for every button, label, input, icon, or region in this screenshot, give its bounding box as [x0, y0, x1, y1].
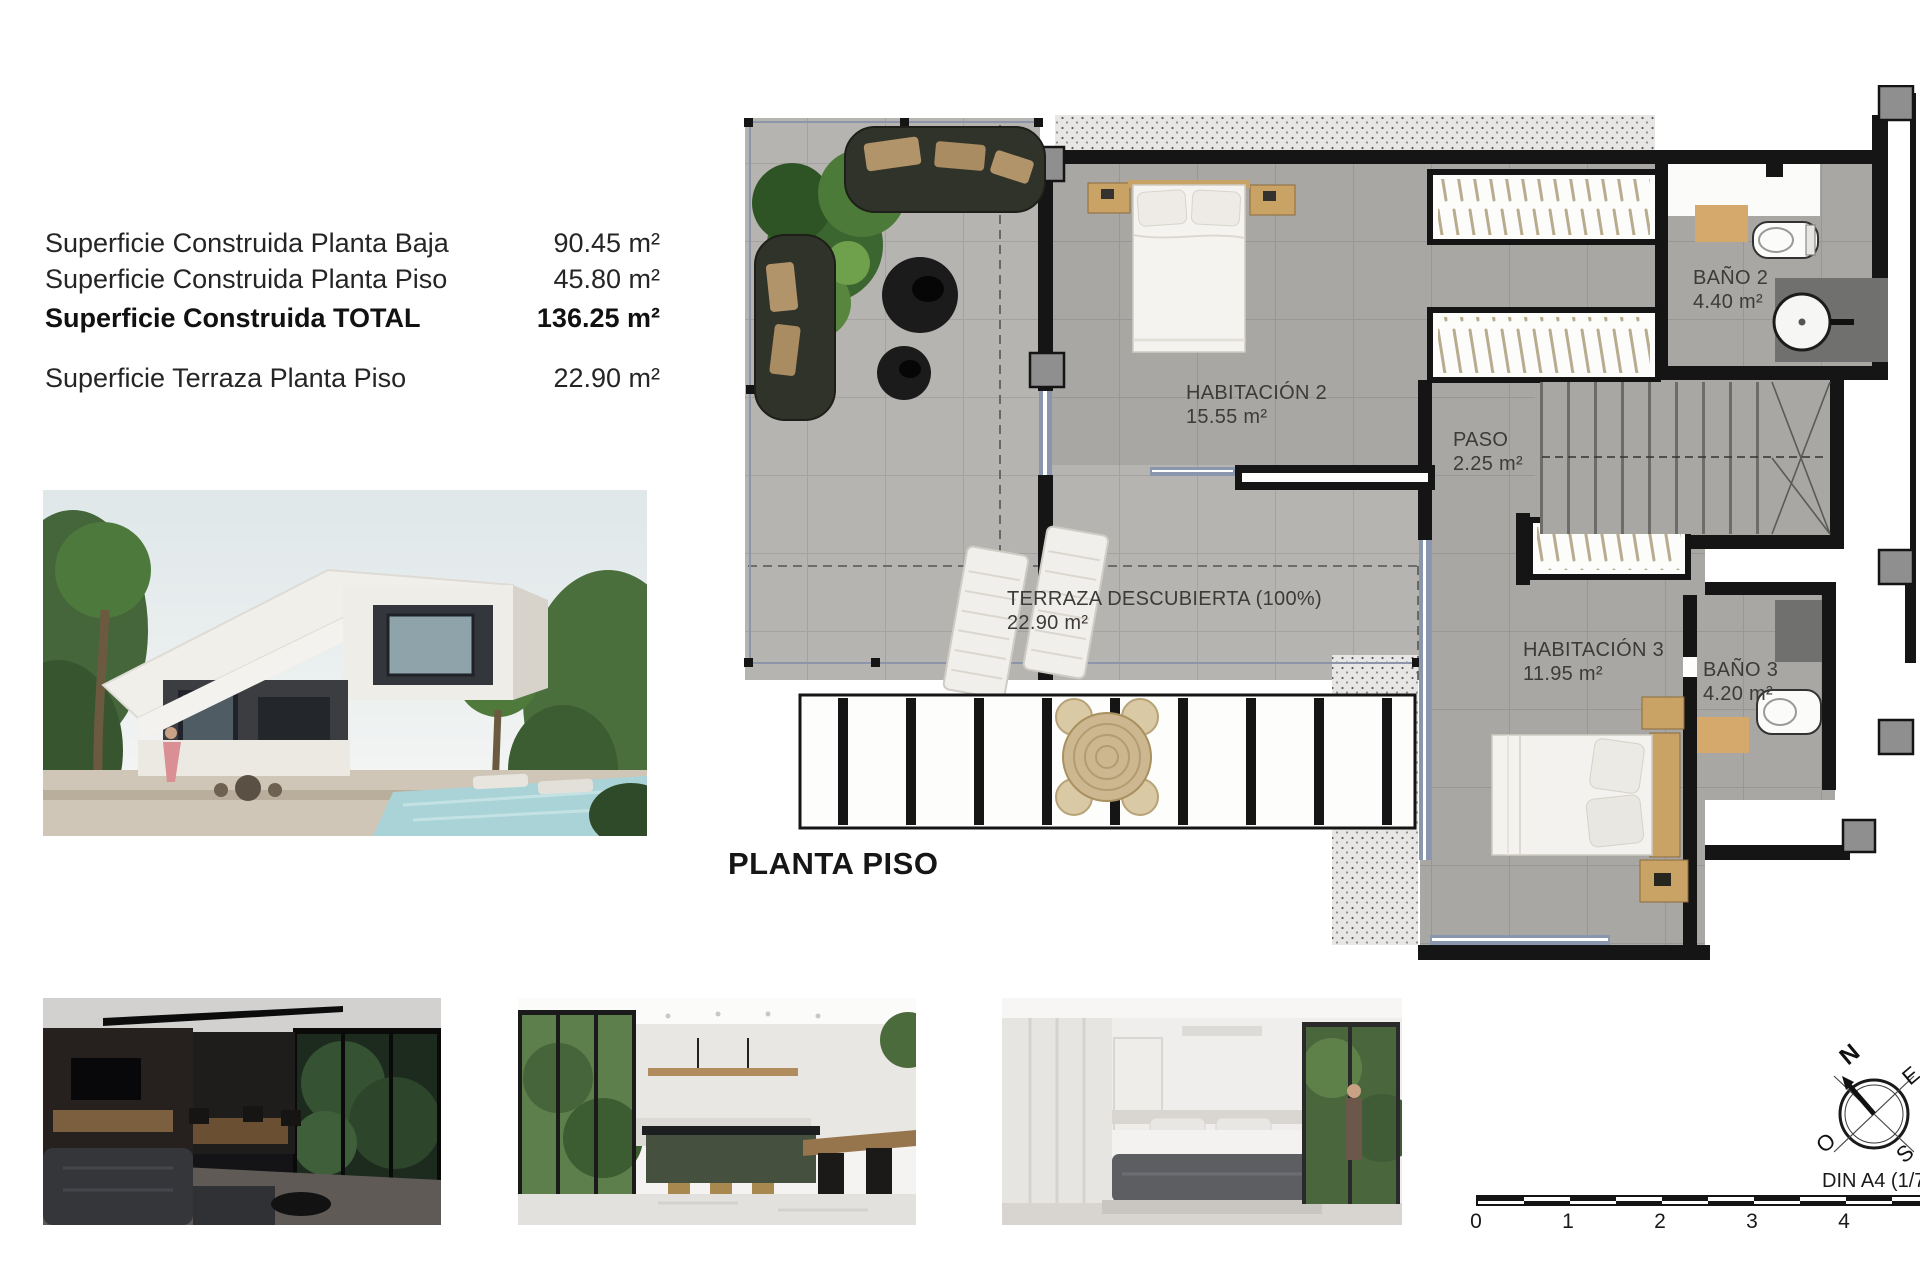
- compass-east-label: E: [1897, 1061, 1920, 1090]
- surface-value: 90.45 m²: [430, 228, 660, 259]
- gravel-strip-top: [1055, 115, 1655, 150]
- room-label-habitacion3: HABITACIÓN 3 11.95 m²: [1523, 638, 1664, 686]
- room-name: BAÑO 2: [1693, 266, 1768, 290]
- room-label-bano2: BAÑO 2 4.40 m²: [1693, 266, 1768, 314]
- scale-tick: 1: [1556, 1210, 1580, 1234]
- room-name: PASO: [1453, 428, 1523, 452]
- room-name: BAÑO 3: [1703, 658, 1778, 682]
- interior-photo-kitchen: [518, 998, 916, 1225]
- room-label-bano3: BAÑO 3 4.20 m²: [1703, 658, 1778, 706]
- pergola: [800, 695, 1415, 828]
- room-area: 4.20 m²: [1703, 682, 1778, 706]
- room-name: HABITACIÓN 2: [1186, 381, 1327, 405]
- room-area: 15.55 m²: [1186, 405, 1327, 429]
- room-label-paso: PASO 2.25 m²: [1453, 428, 1523, 476]
- surface-label: Superficie Construida Planta Piso: [45, 264, 447, 295]
- table-row: Superficie Terraza Planta Piso 22.90 m²: [45, 363, 660, 397]
- scale-tick: 0: [1464, 1210, 1488, 1234]
- table-row: Superficie Construida Planta Piso 45.80 …: [45, 264, 660, 298]
- surface-label: Superficie Construida TOTAL: [45, 303, 421, 334]
- table-row: Superficie Construida Planta Baja 90.45 …: [45, 228, 660, 262]
- stairs: [1540, 382, 1830, 534]
- floor-plan-drawing: [730, 85, 1920, 975]
- outdoor-dining-set: [1056, 699, 1158, 815]
- villa-exterior-illustration: [43, 490, 647, 836]
- surface-value: 136.25 m²: [430, 303, 660, 334]
- room-name: HABITACIÓN 3: [1523, 638, 1664, 662]
- plan-sheet-page: Superficie Construida Planta Baja 90.45 …: [0, 0, 1920, 1280]
- room-area: 11.95 m²: [1523, 662, 1664, 686]
- floor-plan: HABITACIÓN 2 15.55 m² PASO 2.25 m² BAÑO …: [730, 85, 1920, 975]
- compass-south-label: S: [1891, 1139, 1918, 1168]
- scale-bar-graphic: [1476, 1195, 1920, 1206]
- compass-rose: N E O S: [1812, 1038, 1920, 1170]
- surface-value: 22.90 m²: [430, 363, 660, 394]
- interior-photo-living-room: [43, 998, 441, 1225]
- scale-tick: 4: [1832, 1210, 1856, 1234]
- villa-exterior-photo: [43, 490, 647, 836]
- room-label-habitacion2: HABITACIÓN 2 15.55 m²: [1186, 381, 1327, 429]
- surface-value: 45.80 m²: [430, 264, 660, 295]
- room-area: 2.25 m²: [1453, 452, 1523, 476]
- room-name: TERRAZA DESCUBIERTA (100%): [1007, 587, 1322, 611]
- scale-tick: 2: [1648, 1210, 1672, 1234]
- sheet-format-label: DIN A4 (1/75: [1822, 1170, 1920, 1193]
- plan-title: PLANTA PISO: [728, 846, 938, 882]
- scale-tick: 3: [1740, 1210, 1764, 1234]
- room-area: 4.40 m²: [1693, 290, 1768, 314]
- living-room-illustration: [43, 998, 441, 1225]
- kitchen-illustration: [518, 998, 916, 1225]
- room-area: 22.90 m²: [1007, 611, 1322, 635]
- surface-label: Superficie Construida Planta Baja: [45, 228, 449, 259]
- room-label-terraza: TERRAZA DESCUBIERTA (100%) 22.90 m²: [1007, 587, 1322, 635]
- surface-label: Superficie Terraza Planta Piso: [45, 363, 406, 394]
- compass-west-label: O: [1812, 1128, 1840, 1158]
- table-row-total: Superficie Construida TOTAL 136.25 m²: [45, 303, 660, 337]
- bedroom-illustration: [1002, 998, 1402, 1225]
- scale-bar: 0 1 2 3 4: [1470, 1193, 1920, 1233]
- interior-photo-bedroom: [1002, 998, 1402, 1225]
- compass-north-label: N: [1835, 1039, 1866, 1071]
